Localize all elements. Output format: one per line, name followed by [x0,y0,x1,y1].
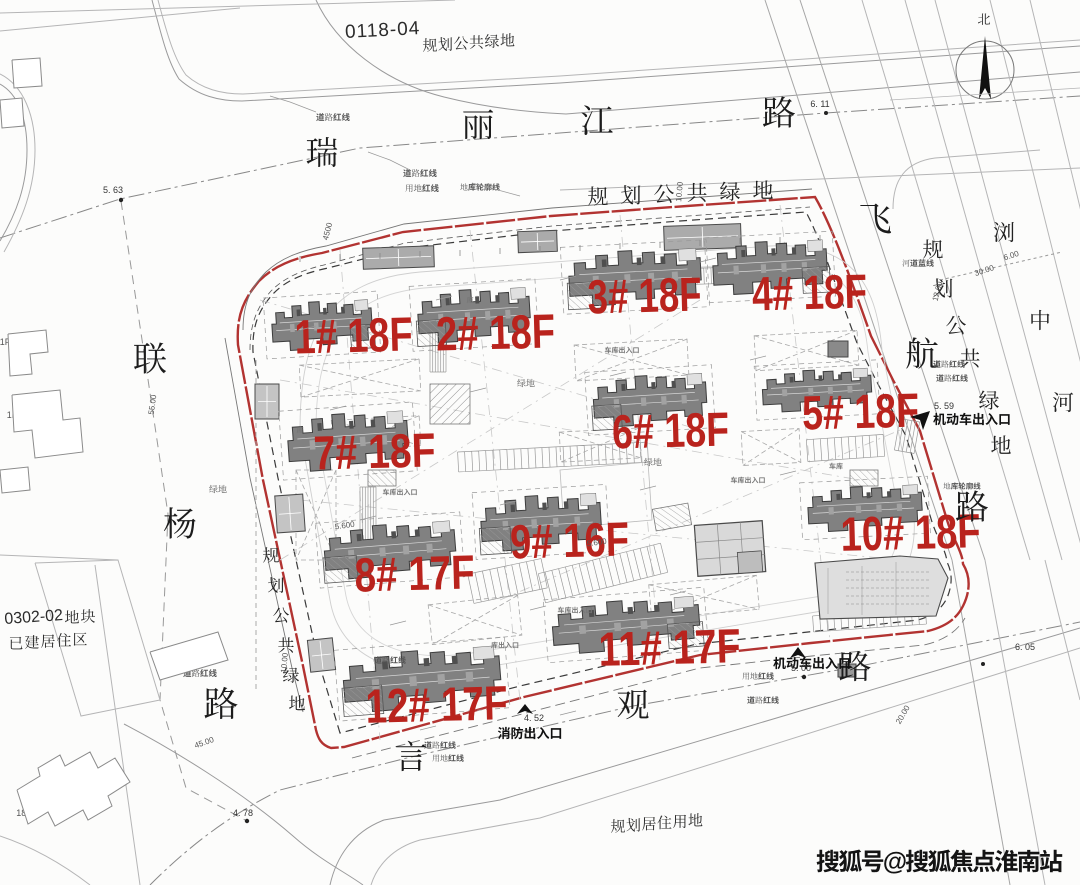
svg-text:5# 18F: 5# 18F [801,384,919,440]
svg-text:11# 17F: 11# 17F [598,620,741,677]
svg-text:@: @ [883,848,907,876]
svg-text:6# 18F: 6# 18F [611,403,729,459]
svg-text:10# 18F: 10# 18F [840,505,981,562]
svg-text:9# 16F: 9# 16F [509,513,629,569]
svg-text:6. 05: 6. 05 [1015,642,1035,652]
svg-text:7# 18F: 7# 18F [313,424,436,480]
svg-text:10.00: 10.00 [279,652,290,673]
svg-text:5. 63: 5. 63 [103,185,123,195]
svg-text:3# 18F: 3# 18F [587,269,702,325]
svg-text:0118-04: 0118-04 [345,18,421,43]
svg-text:6. 11: 6. 11 [810,99,829,109]
svg-text:4. 52: 4. 52 [524,713,544,723]
svg-text:12# 17F: 12# 17F [365,677,508,734]
svg-text:2# 18F: 2# 18F [435,305,555,361]
svg-text:1# 18F: 1# 18F [294,308,413,364]
svg-text:4. 78: 4. 78 [233,808,253,818]
svg-text:5. 59: 5. 59 [934,401,954,411]
svg-text:5. 00: 5. 00 [791,663,811,673]
svg-text:8# 17F: 8# 17F [354,546,475,602]
svg-text:10.00: 10.00 [674,181,685,202]
svg-text:4# 18F: 4# 18F [751,266,867,322]
